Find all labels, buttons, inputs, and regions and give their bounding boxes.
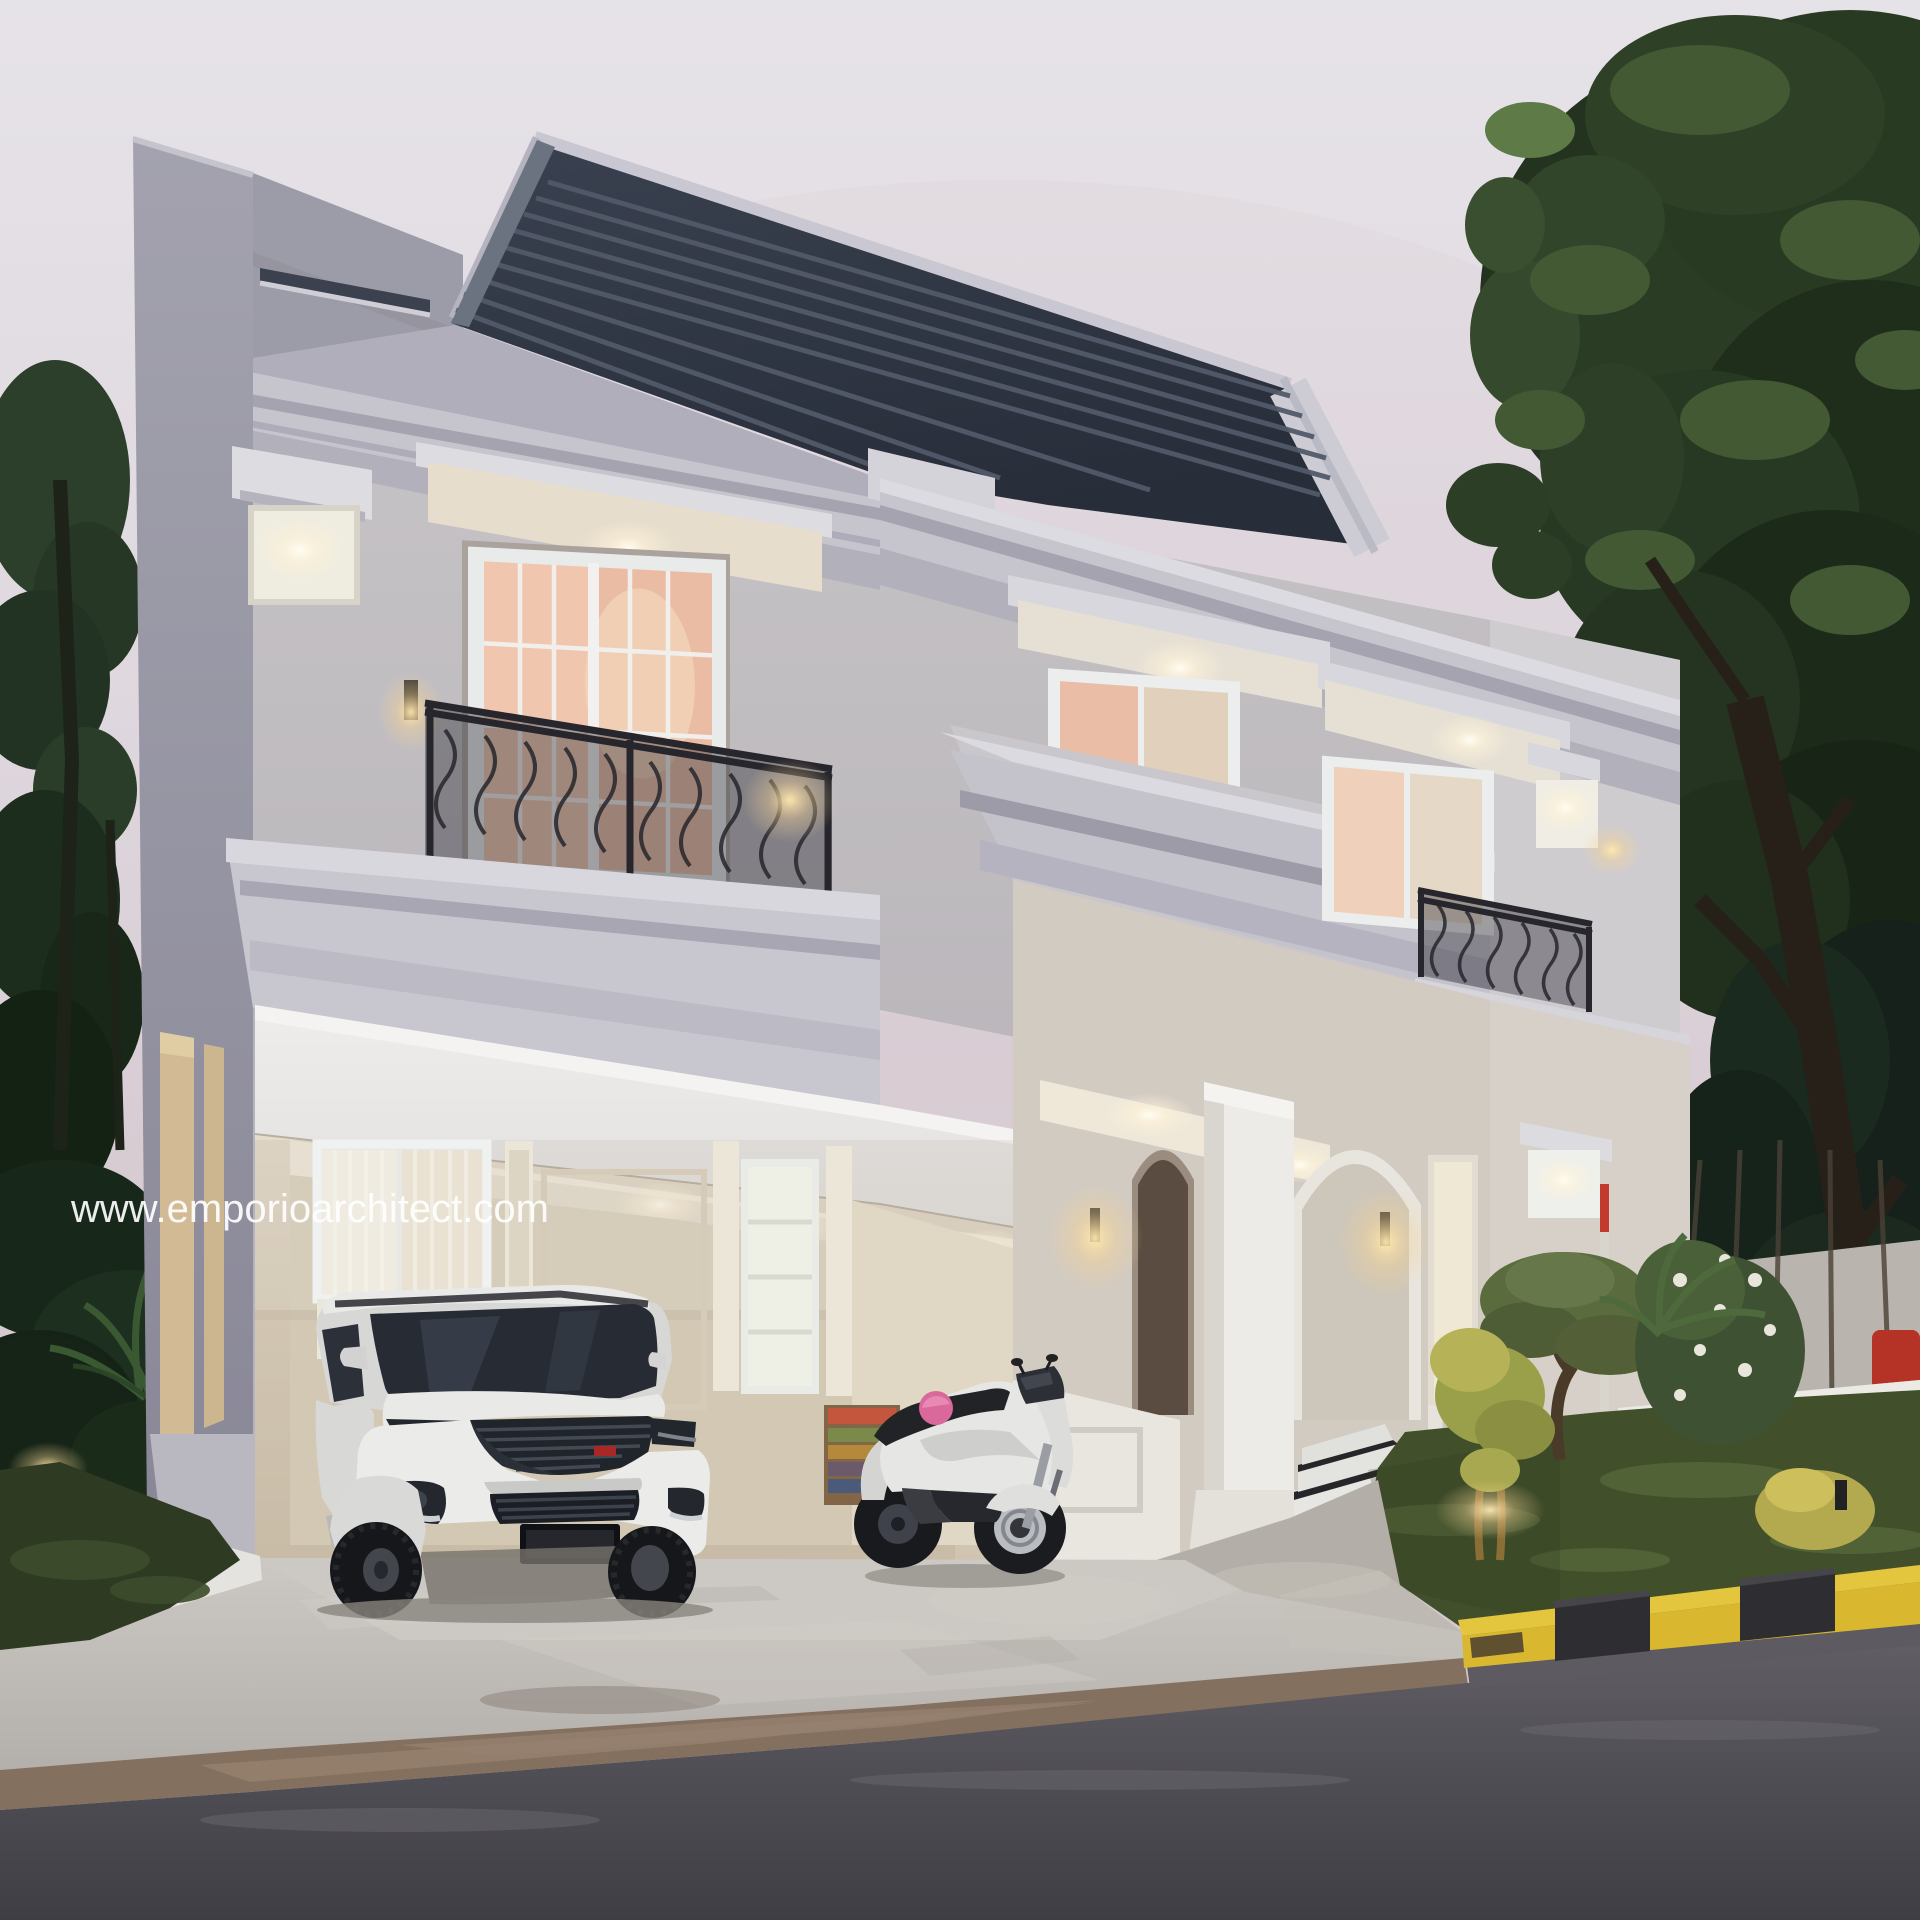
svg-text:www.emporioarchitect.com: www.emporioarchitect.com bbox=[70, 1187, 549, 1231]
